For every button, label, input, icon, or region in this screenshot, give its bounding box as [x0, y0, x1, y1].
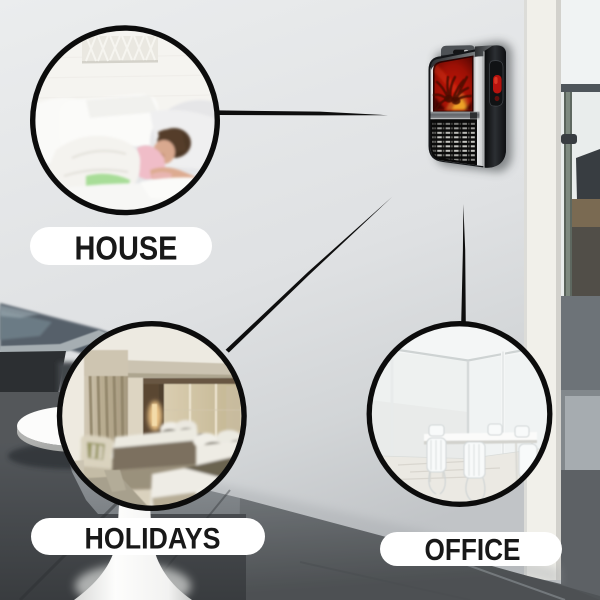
svg-text:HOUSE: HOUSE [75, 230, 178, 267]
svg-text:OFFICE: OFFICE [425, 532, 521, 567]
svg-text:HOLIDAYS: HOLIDAYS [85, 523, 221, 556]
